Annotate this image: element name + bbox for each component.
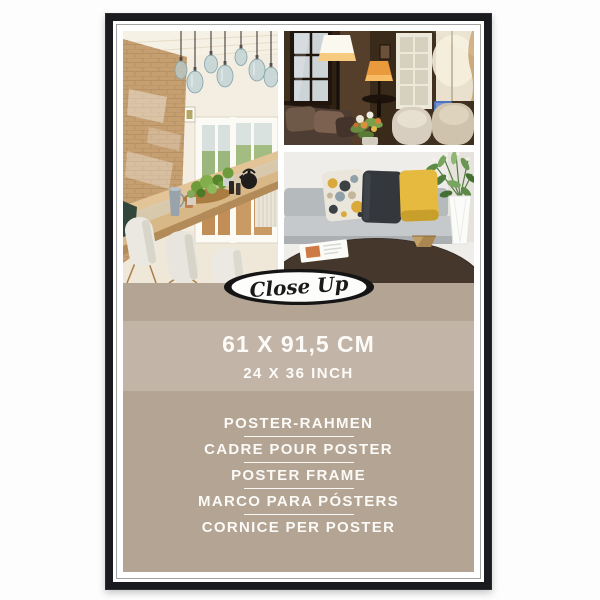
product-name-en: POSTER FRAME xyxy=(123,463,474,488)
product-name-it: CORNICE PER POSTER xyxy=(123,515,474,540)
photo-collage xyxy=(123,31,474,283)
product-name-de: POSTER-RAHMEN xyxy=(123,411,474,436)
size-cm-label: 61 X 91,5 CM xyxy=(222,331,375,358)
poster-frame: 61 X 91,5 CM 24 X 36 INCH POSTER-RAHMEN … xyxy=(105,13,492,590)
photo-sofa-cushions xyxy=(284,152,474,283)
size-panel: 61 X 91,5 CM 24 X 36 INCH xyxy=(123,321,474,391)
frame-mat: 61 X 91,5 CM 24 X 36 INCH POSTER-RAHMEN … xyxy=(113,21,484,582)
photo-living-room-lamps xyxy=(284,31,474,145)
closeup-logo: Close Up xyxy=(220,268,378,306)
product-names-panel: POSTER-RAHMEN CADRE POUR POSTER POSTER F… xyxy=(123,391,474,540)
poster-insert: 61 X 91,5 CM 24 X 36 INCH POSTER-RAHMEN … xyxy=(123,31,474,572)
photo-dining-room xyxy=(123,31,278,283)
mat-pinstripe: 61 X 91,5 CM 24 X 36 INCH POSTER-RAHMEN … xyxy=(116,24,481,579)
product-image: 61 X 91,5 CM 24 X 36 INCH POSTER-RAHMEN … xyxy=(0,0,600,600)
size-inch-label: 24 X 36 INCH xyxy=(243,365,354,382)
info-panel: 61 X 91,5 CM 24 X 36 INCH POSTER-RAHMEN … xyxy=(123,283,474,572)
product-name-es: MARCO PARA PÓSTERS xyxy=(123,489,474,514)
product-name-fr: CADRE POUR POSTER xyxy=(123,437,474,462)
